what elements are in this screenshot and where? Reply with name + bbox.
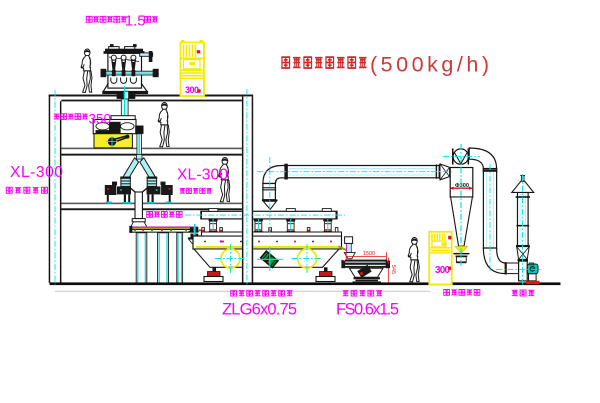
svg-text:1.5: 1.5 xyxy=(125,13,146,30)
svg-text:545: 545 xyxy=(390,265,396,274)
svg-text:1500: 1500 xyxy=(363,251,375,257)
svg-text:(500kg/h): (500kg/h) xyxy=(370,53,489,77)
svg-text:300: 300 xyxy=(435,265,451,276)
svg-text:300: 300 xyxy=(185,85,199,95)
svg-text:350: 350 xyxy=(89,112,112,127)
svg-text:ZLG6x0.75: ZLG6x0.75 xyxy=(222,301,297,319)
svg-text:FS0.6x1.5: FS0.6x1.5 xyxy=(336,301,399,319)
svg-text:Φ300: Φ300 xyxy=(455,183,469,189)
svg-text:XL-300: XL-300 xyxy=(177,167,228,184)
svg-text:XL-300: XL-300 xyxy=(10,164,63,181)
